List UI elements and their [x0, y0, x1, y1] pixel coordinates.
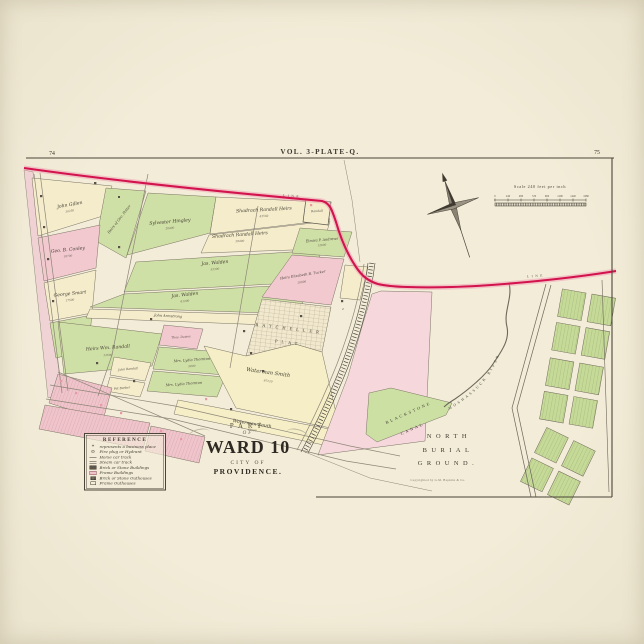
horse-track-icon	[89, 457, 97, 458]
map-poster: Scale 240 feet per inch 0 240 480 720 96…	[0, 0, 644, 644]
legend-item-label: represents a business place	[100, 444, 156, 449]
title-cartouche: PART OF WARD 10 CITY OF PROVIDENCE.	[192, 423, 304, 476]
legend-item-label: Brick or Stone Outhouses	[100, 476, 152, 481]
plat-block	[520, 458, 553, 492]
burial-ground-label: BURIAL	[423, 447, 474, 454]
legend-item-label: Frame Buildings	[100, 471, 134, 476]
plat-block	[534, 427, 568, 463]
compass-arrowhead	[440, 172, 447, 182]
plat-block	[552, 322, 580, 354]
river-label: MOSHASSUCK RIVER	[448, 353, 501, 411]
river-label-text: MOSHASSUCK RIVER	[448, 353, 501, 411]
parcel-shape	[340, 265, 368, 300]
lot-number: 2	[341, 307, 344, 311]
scale-caption: Scale 240 feet per inch	[514, 184, 566, 189]
burial-ground-label: NORTH	[427, 433, 471, 440]
compass-rose	[417, 164, 496, 265]
plat-block	[545, 358, 573, 390]
scale-tick: 1200	[557, 195, 563, 198]
parcel-area: 9800	[188, 364, 196, 369]
parcel-area: 43560	[258, 214, 268, 219]
reference-legend-inner: REFERENCE * represents a business place …	[86, 435, 164, 489]
page-number-right: 75	[594, 150, 600, 156]
scale-tick: 0	[494, 195, 496, 198]
map-canvas: Scale 240 feet per inch 0 240 480 720 96…	[0, 0, 644, 644]
parcel-area: 38400	[235, 239, 244, 244]
reference-legend: REFERENCE * represents a business place …	[84, 433, 166, 491]
parcel-area: 32600	[103, 353, 112, 358]
plat-block	[561, 441, 595, 477]
plat-block	[547, 471, 580, 505]
parcel-area: 52300	[210, 267, 219, 272]
boundary-line-label: LINE	[527, 274, 545, 279]
plat-block	[558, 289, 586, 321]
road	[305, 452, 432, 491]
cartouche-providence: PROVIDENCE.	[192, 467, 304, 476]
plat-block	[569, 397, 597, 429]
frame-building-swatch	[89, 471, 97, 475]
plat-block	[575, 363, 603, 395]
plat-block	[587, 294, 615, 326]
page-number-left: 74	[49, 151, 55, 157]
parcel-area: 12600	[317, 243, 326, 248]
legend-item: Frame Outhouses	[89, 481, 161, 486]
brick-building-swatch	[89, 466, 97, 470]
steam-track-icon	[89, 461, 97, 464]
scale-tick: 480	[519, 195, 524, 198]
legend-item-label: Frame Outhouses	[100, 481, 136, 486]
brick-outhouse-swatch	[89, 476, 97, 480]
scale-bar: Scale 240 feet per inch 0 240 480 720 96…	[494, 184, 589, 206]
cartouche-ward: WARD 10	[192, 437, 304, 458]
legend-item-label: Brick or Stone Buildings	[100, 465, 150, 470]
parcel-label: Randall	[310, 209, 323, 214]
cartouche-part-row: PART	[192, 423, 304, 430]
legend-item: * represents a business place	[89, 444, 161, 449]
plat-block	[539, 391, 567, 423]
scale-tick: 720	[532, 195, 537, 198]
scale-ruler	[495, 203, 586, 206]
scale-tick: 1440	[570, 195, 576, 198]
legend-title: REFERENCE	[89, 437, 161, 443]
legend-item-label: Steam car track	[100, 460, 133, 465]
scale-tick: 1680	[583, 195, 589, 198]
burial-ground-label: GROUND.	[418, 460, 478, 467]
legend-item: Brick or Stone Outhouses	[89, 476, 161, 481]
plat-block	[581, 328, 609, 360]
legend-item-label: Horse car track	[100, 455, 132, 460]
hydrant-icon: ⊙	[89, 449, 97, 455]
legend-item-label: Fire plug or Hydrant	[100, 450, 142, 455]
scale-tick: 960	[545, 195, 550, 198]
frame-outhouse-swatch	[89, 482, 97, 486]
scale-tick: 240	[506, 195, 511, 198]
copyright-line: Copyrighted by G.M. Hopkins & Co.	[411, 479, 466, 482]
cartouche-city: CITY OF	[192, 460, 304, 466]
plate-title: VOL. 3-PLATE-Q.	[280, 148, 359, 156]
right-plat	[512, 280, 616, 505]
